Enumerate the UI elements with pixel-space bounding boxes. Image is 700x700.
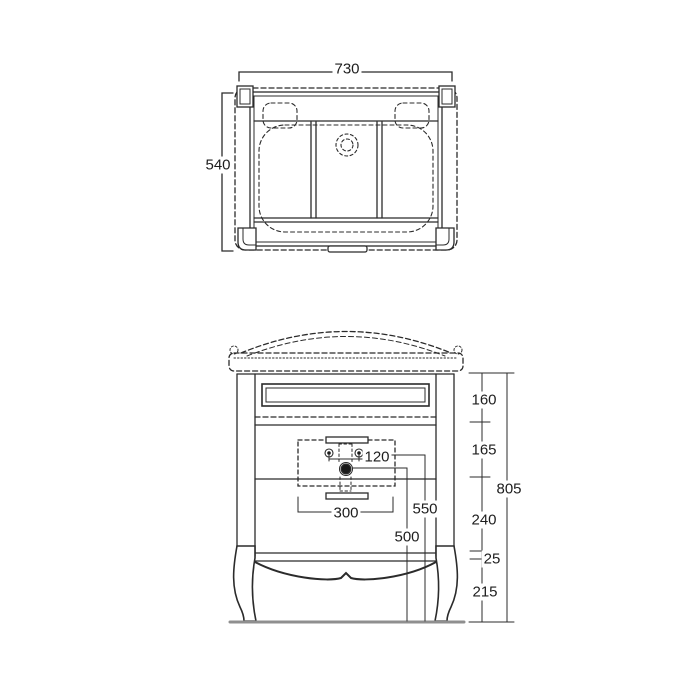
countertop-slab <box>229 353 463 371</box>
top-view <box>222 72 457 252</box>
dim-label-top-depth: 540 <box>203 157 232 174</box>
plan-front-handle <box>328 246 367 252</box>
lower-drawer-handle <box>326 493 368 499</box>
dim-label-supply-height: 550 <box>410 501 439 518</box>
upper-drawer-handle <box>326 437 368 443</box>
dim-label-seg-240: 240 <box>469 512 498 529</box>
apron-curve <box>255 562 436 579</box>
technical-drawing-vanity: 730 540 120 300 550 500 160 165 805 240 … <box>0 0 700 700</box>
dim-label-total-height: 805 <box>494 481 523 498</box>
dim-label-seg-25: 25 <box>482 551 503 568</box>
dim-label-tap-spacing: 120 <box>362 449 391 466</box>
drain-hole <box>341 464 351 474</box>
leg-post-bottom-right <box>436 228 454 250</box>
leg-post-bottom-left <box>238 228 256 250</box>
dim-label-top-width: 730 <box>332 61 361 78</box>
leg-right <box>435 546 457 621</box>
dim-label-seg-165: 165 <box>469 442 498 459</box>
carcass-outer <box>250 92 442 246</box>
dim-label-seg-215: 215 <box>470 584 499 601</box>
top-drawer-panel-outer <box>262 384 429 406</box>
top-drawer-panel-inner <box>266 388 425 402</box>
supply-hole-right-dot <box>357 451 361 455</box>
leg-left <box>234 546 256 621</box>
supply-hole-left-dot <box>327 451 331 455</box>
drawing-linework <box>0 0 700 700</box>
dim-label-seg-160: 160 <box>469 392 498 409</box>
dim-label-drain-height: 500 <box>392 529 421 546</box>
front-view <box>229 332 464 623</box>
countertop-arch-outer <box>241 332 451 354</box>
dim-label-handle-width: 300 <box>331 505 360 522</box>
